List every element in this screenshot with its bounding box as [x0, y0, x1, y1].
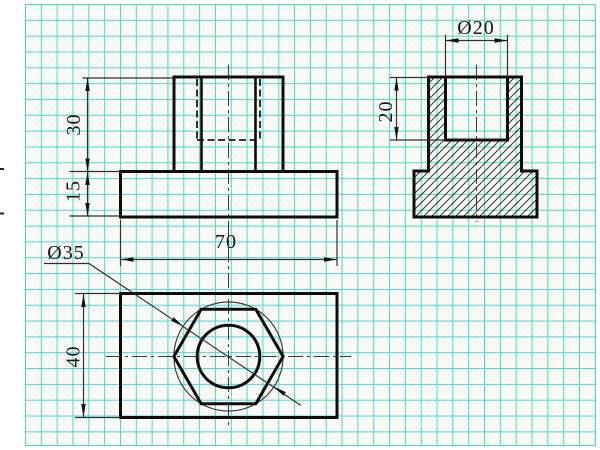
crop-mark	[0, 169, 4, 214]
arrowhead-down	[394, 127, 398, 140]
extension-lines	[70, 78, 175, 172]
technical-drawing: 30 15 70 Ø35	[0, 0, 600, 450]
section-hatch	[414, 77, 537, 217]
dim-label-20: 20	[375, 101, 397, 123]
dim-label-dia35: Ø35	[47, 242, 84, 264]
arrowhead-up	[394, 78, 398, 91]
arrowhead-up	[85, 78, 89, 91]
dimension-base-depth: 40	[63, 294, 121, 418]
arrowhead-left	[121, 257, 134, 261]
center-lines	[106, 65, 477, 428]
arrowhead-up	[81, 294, 85, 307]
arrowhead-far	[274, 387, 286, 396]
dimension-boss-height: 30	[63, 78, 174, 172]
drawing-canvas: 30 15 70 Ø35	[0, 0, 600, 450]
dim-label-dia20: Ø20	[457, 17, 494, 39]
arrowhead-down	[85, 203, 89, 216]
dim-label-30: 30	[63, 114, 85, 136]
arrowhead-down	[85, 159, 89, 172]
arrowhead-right	[495, 38, 508, 42]
arrowhead-up	[85, 172, 89, 185]
dimension-base-thickness: 15	[63, 172, 122, 216]
arrowhead-down	[81, 404, 85, 417]
dim-label-40: 40	[63, 346, 85, 368]
dim-label-15: 15	[63, 180, 85, 202]
dim-label-70: 70	[215, 231, 237, 253]
arrowhead-right	[324, 257, 337, 261]
side-section-view	[414, 77, 537, 217]
leader-line	[44, 264, 301, 406]
arrowhead-near	[171, 317, 183, 326]
dimension-hex-circle: Ø35	[44, 242, 301, 406]
